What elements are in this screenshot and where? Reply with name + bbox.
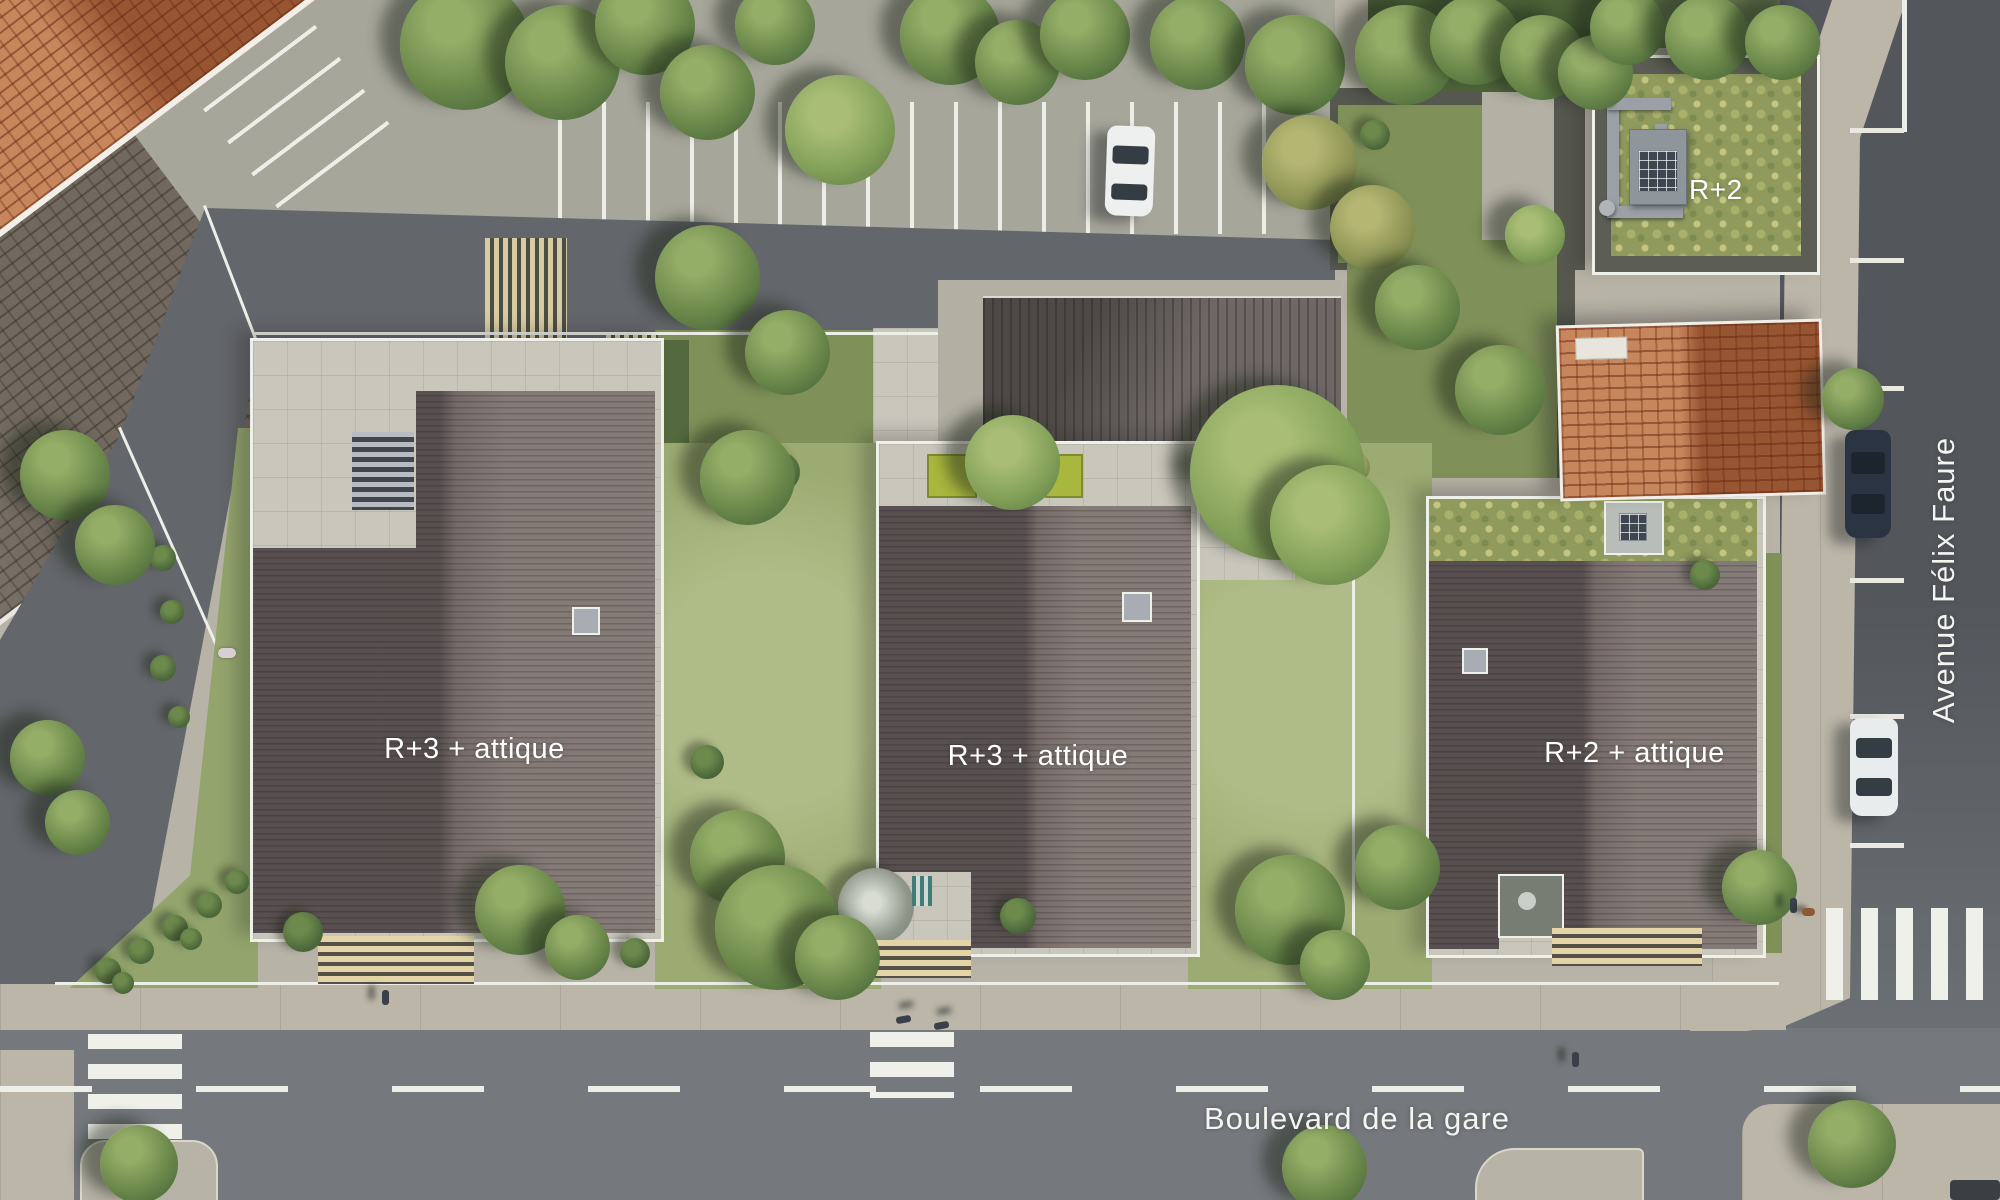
southwest-sidewalk — [0, 1050, 74, 1200]
parking-bay-line — [1850, 128, 1904, 133]
white-car-parking — [1104, 125, 1155, 217]
boulevard-sidewalk — [0, 984, 1786, 1030]
skylight — [1122, 592, 1152, 622]
skylight — [1462, 648, 1488, 674]
shrub — [690, 745, 724, 779]
tree — [965, 415, 1060, 510]
tree — [1270, 465, 1390, 585]
apron-west — [938, 280, 986, 445]
parking-bay-line — [1850, 578, 1904, 583]
pergola-table — [1518, 892, 1536, 910]
tree — [700, 430, 795, 525]
tree — [795, 915, 880, 1000]
tree — [1505, 205, 1565, 265]
shrub — [160, 600, 184, 624]
shrub — [112, 972, 134, 994]
site-wall-south — [55, 982, 1779, 985]
roof-shed — [1604, 501, 1664, 555]
building-east-deck — [1552, 928, 1702, 966]
skylight — [572, 607, 600, 635]
building-west-roof — [253, 341, 661, 939]
wood-claustra-north — [485, 238, 567, 340]
car-rear-window — [1856, 778, 1892, 796]
street-tree — [1822, 368, 1884, 430]
parking-bay-line — [1850, 258, 1904, 263]
tree — [1355, 825, 1440, 910]
shrub — [283, 912, 323, 952]
crosswalk-boulevard-center — [870, 1032, 954, 1098]
shrub — [1690, 560, 1720, 590]
shrub — [196, 892, 222, 918]
avenue-lane-line — [1902, 0, 1907, 132]
tree — [1245, 15, 1345, 115]
tree — [1300, 930, 1370, 1000]
neighbor-house-roof-midright — [1556, 319, 1827, 502]
site-wall-north — [255, 332, 987, 335]
parking-stall-lines — [558, 102, 1288, 234]
building-east-label: R+2 + attique — [1506, 737, 1763, 770]
pedestrian — [1790, 898, 1797, 913]
shrub — [225, 870, 249, 894]
traffic-island-center — [1475, 1148, 1644, 1200]
roof-vent — [1599, 200, 1615, 216]
shrub — [150, 655, 176, 681]
tree — [1808, 1100, 1896, 1188]
tree — [745, 310, 830, 395]
tree — [45, 790, 110, 855]
parked-vehicle-roof — [1950, 1180, 2000, 1200]
tree — [75, 505, 155, 585]
building-northeast-label: R+2 — [1689, 174, 1743, 206]
garden-fence-23 — [1352, 558, 1355, 988]
shrub — [620, 938, 650, 968]
boulevard-road — [0, 1028, 2000, 1200]
roof-pipe — [1607, 206, 1683, 218]
tree — [100, 1125, 178, 1200]
white-car-avenue — [1850, 718, 1898, 816]
car-rear-window — [1851, 494, 1885, 514]
tree — [655, 225, 760, 330]
car-windshield — [1851, 452, 1885, 474]
building-west: R+3 + attique — [250, 338, 664, 942]
solar-panel — [1638, 150, 1678, 192]
tree — [20, 430, 110, 520]
shrub — [168, 706, 190, 728]
tree — [660, 45, 755, 140]
crosswalk-avenue — [1826, 908, 2000, 1000]
person-on-lawn — [218, 648, 236, 658]
pedestrian — [382, 990, 389, 1005]
terrace-lounger — [912, 876, 932, 906]
hvac-unit — [1629, 129, 1687, 205]
car-rear-window — [1111, 183, 1148, 200]
tree — [785, 75, 895, 185]
tree — [10, 720, 85, 795]
building-west-label: R+3 + attique — [288, 733, 661, 766]
building-west-front-claustra — [318, 936, 474, 984]
solar-panel — [1619, 513, 1647, 541]
building-east-green-roof — [1429, 499, 1757, 561]
shrub — [128, 938, 154, 964]
roof-terrace-furniture — [352, 432, 414, 510]
dog — [1802, 908, 1815, 916]
boulevard-center-dashes — [0, 1086, 2000, 1092]
car-windshield — [1112, 145, 1149, 164]
navy-car-avenue — [1845, 430, 1891, 538]
site-plan-rendering: R+3 + attique R+3 + attique R+2 + attiqu… — [0, 0, 2000, 1200]
building-center-label: R+3 + attique — [879, 740, 1197, 773]
tree — [1455, 345, 1545, 435]
tree — [1330, 185, 1415, 270]
parking-bay-line — [1850, 843, 1904, 848]
tree — [1745, 5, 1820, 80]
car-windshield — [1856, 738, 1892, 758]
shrub — [1000, 898, 1036, 934]
roof-dormer — [1575, 337, 1628, 360]
tree — [1375, 265, 1460, 350]
tree — [545, 915, 610, 980]
boulevard-street-label: Boulevard de la gare — [1057, 1101, 1657, 1137]
shrub — [1360, 120, 1390, 150]
shrub — [180, 928, 202, 950]
avenue-street-label: Avenue Félix Faure — [1926, 400, 1962, 760]
pedestrian — [1572, 1052, 1579, 1067]
tree — [1722, 850, 1797, 925]
